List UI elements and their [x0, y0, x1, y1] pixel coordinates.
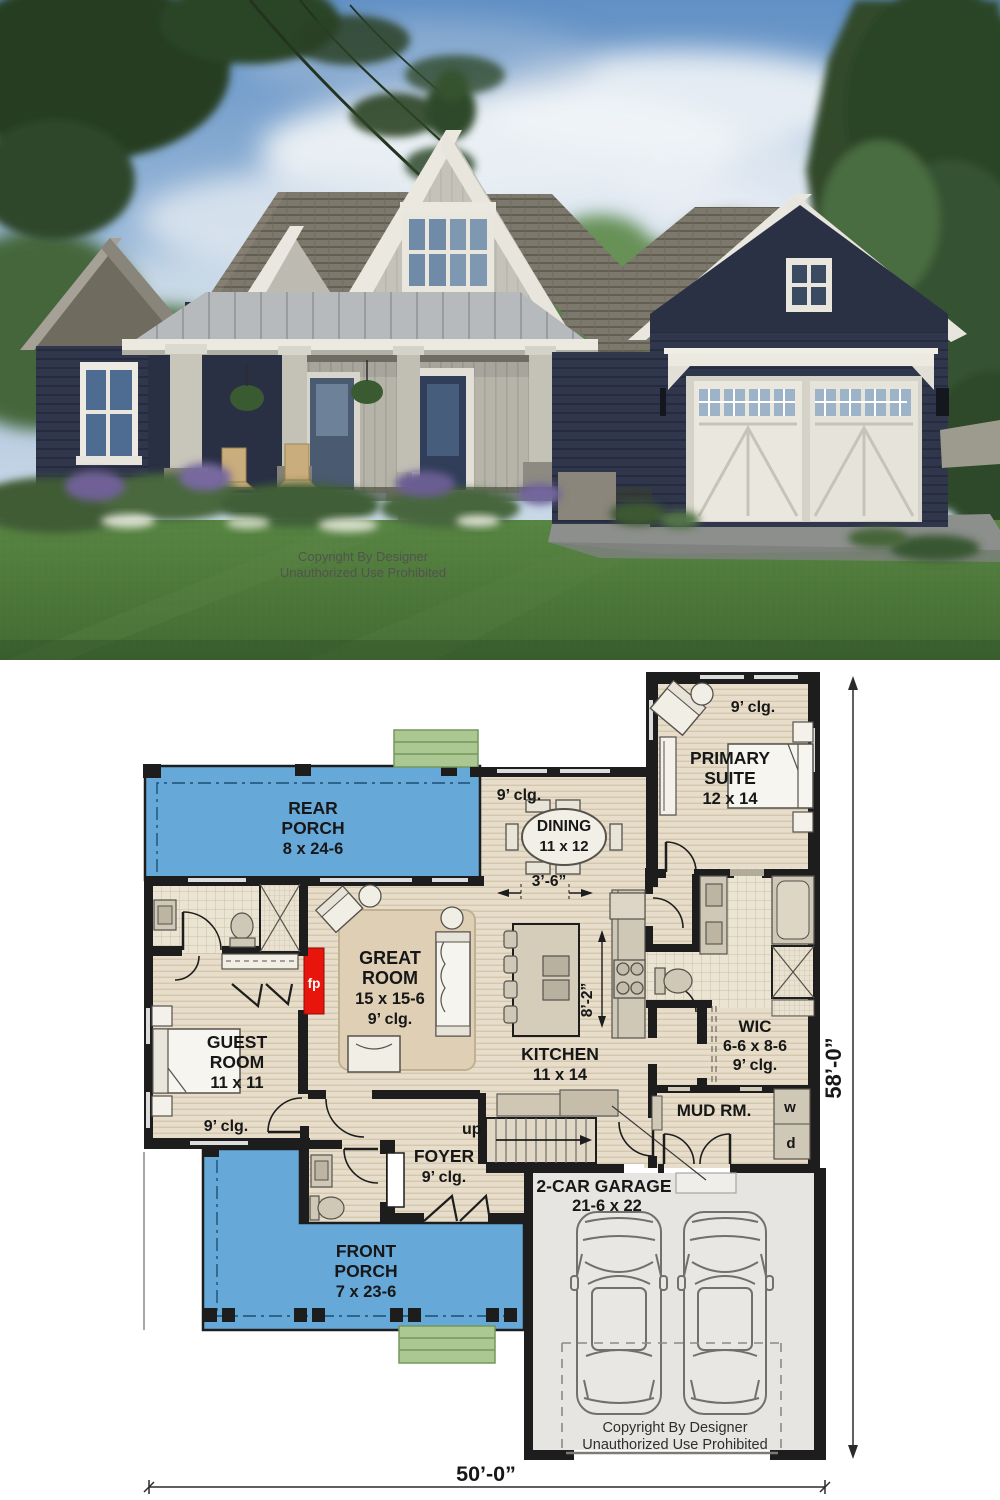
svg-text:8 x 24-6: 8 x 24-6	[283, 840, 344, 858]
svg-text:3’-6”: 3’-6”	[532, 873, 566, 890]
svg-text:d: d	[786, 1135, 795, 1152]
svg-text:FRONT: FRONT	[336, 1241, 397, 1261]
svg-text:7 x 23-6: 7 x 23-6	[336, 1283, 397, 1301]
svg-text:12 x 14: 12 x 14	[702, 790, 758, 808]
svg-text:w: w	[783, 1099, 796, 1116]
svg-text:9’ clg.: 9’ clg.	[368, 1011, 412, 1028]
svg-text:up: up	[462, 1121, 482, 1138]
svg-text:Copyright By Designer: Copyright By Designer	[298, 549, 429, 564]
svg-text:PORCH: PORCH	[334, 1261, 397, 1281]
svg-text:KITCHEN: KITCHEN	[521, 1044, 599, 1064]
svg-text:PRIMARY: PRIMARY	[690, 748, 770, 768]
svg-text:6-6 x 8-6: 6-6 x 8-6	[723, 1038, 787, 1055]
svg-text:REAR: REAR	[288, 798, 338, 818]
svg-text:8’-2”: 8’-2”	[579, 983, 596, 1017]
svg-text:Unauthorized Use Prohibited: Unauthorized Use Prohibited	[280, 565, 446, 580]
svg-text:11 x 14: 11 x 14	[533, 1066, 588, 1084]
svg-text:9’ clg.: 9’ clg.	[731, 699, 775, 716]
svg-text:Unauthorized Use Prohibited: Unauthorized Use Prohibited	[582, 1437, 767, 1453]
svg-text:9’ clg.: 9’ clg.	[204, 1118, 248, 1135]
svg-text:GREAT: GREAT	[359, 948, 421, 968]
svg-text:11 x 12: 11 x 12	[539, 838, 588, 855]
svg-text:PORCH: PORCH	[281, 818, 344, 838]
svg-text:ROOM: ROOM	[362, 968, 418, 988]
svg-text:50’-0”: 50’-0”	[456, 1462, 516, 1486]
svg-text:Copyright By Designer: Copyright By Designer	[602, 1420, 747, 1436]
svg-text:9’ clg.: 9’ clg.	[422, 1169, 466, 1186]
svg-text:15 x 15-6: 15 x 15-6	[355, 990, 425, 1008]
svg-text:fp: fp	[308, 976, 321, 991]
svg-text:DINING: DINING	[537, 818, 591, 835]
svg-text:9’ clg.: 9’ clg.	[497, 787, 541, 804]
svg-text:GUEST: GUEST	[207, 1032, 268, 1052]
svg-text:ROOM: ROOM	[210, 1052, 264, 1072]
svg-text:MUD RM.: MUD RM.	[677, 1101, 752, 1120]
svg-text:FOYER: FOYER	[414, 1146, 475, 1166]
svg-text:2-CAR GARAGE: 2-CAR GARAGE	[536, 1176, 671, 1196]
svg-text:9’ clg.: 9’ clg.	[733, 1057, 777, 1074]
svg-text:SUITE: SUITE	[704, 768, 756, 788]
svg-text:11 x 11: 11 x 11	[210, 1074, 263, 1092]
svg-text:58’-0”: 58’-0”	[821, 1037, 846, 1098]
svg-text:WIC: WIC	[738, 1017, 771, 1036]
